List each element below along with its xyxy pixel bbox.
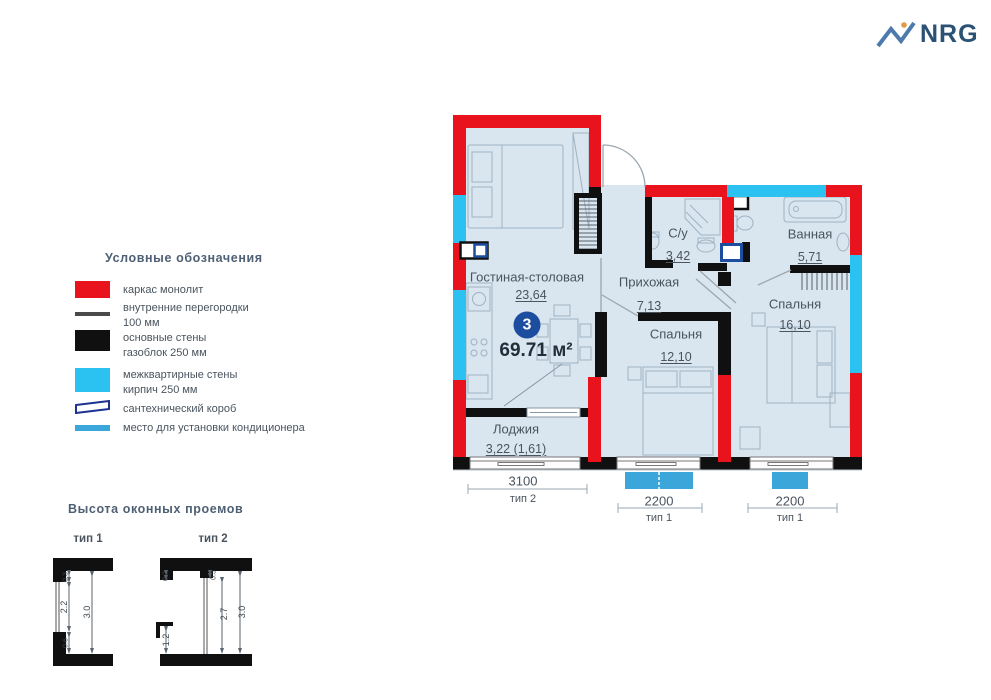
- room-bath-area: 5,71: [798, 250, 822, 264]
- type1-dim-total: 3.0: [82, 606, 92, 619]
- room-hall-area: 7,13: [637, 299, 661, 313]
- room-loggia-area: 3,22 (1,61): [486, 442, 546, 456]
- room-living-name: Гостиная-столовая: [470, 270, 584, 285]
- room-loggia-name: Лоджия: [493, 422, 539, 437]
- type2-dim-window: 2.7: [219, 608, 229, 621]
- legend-label-ac-place: место для установки кондиционера: [123, 421, 305, 436]
- legend-label-monolith: каркас монолит: [123, 283, 203, 298]
- room-wc-name: С/у: [668, 226, 688, 241]
- type2-dim-top-left: 0.2: [163, 571, 170, 581]
- window-type1-label: тип 1: [73, 533, 102, 545]
- window-heights-title: Высота оконных проемов: [68, 502, 243, 516]
- windows: [470, 457, 833, 469]
- legend-label-partitions: внутренние перегородки100 мм: [123, 301, 249, 331]
- dim-window1-type: тип 1: [646, 512, 672, 524]
- legend-chip-sanitary-box-icon: [75, 400, 110, 414]
- legend-chip-ac-place: [75, 425, 110, 431]
- ac-place-2: [772, 472, 808, 489]
- legend-label-main-walls: основные стеныгазоблок 250 мм: [123, 331, 207, 361]
- sanitary-box-plan: [722, 245, 742, 261]
- dim-window2-type: тип 1: [777, 512, 803, 524]
- type2-dim-top-mid: 0.3: [211, 570, 218, 580]
- room-wc-area: 3,42: [666, 249, 690, 263]
- room-bedroom16-area: 16,10: [779, 318, 810, 332]
- rooms-count-badge: 3: [514, 312, 541, 339]
- type1-dim-top: 0.3: [63, 572, 70, 582]
- type1-dim-window: 2.2: [59, 601, 69, 614]
- legend-label-sanitary-box: сантехнический короб: [123, 402, 236, 417]
- nrg-logo-text: NRG: [920, 20, 979, 49]
- window-type1-diagram: [45, 552, 145, 680]
- legend-chip-monolith: [75, 281, 110, 298]
- nrg-logo-icon: [874, 16, 916, 52]
- legend-chip-partitions: [75, 312, 110, 316]
- room-bedroom12-name: Спальня: [650, 327, 702, 342]
- room-living-area: 23,64: [515, 288, 546, 302]
- vent-shaft: [577, 196, 600, 252]
- type2-dim-total: 3.0: [237, 606, 247, 619]
- floorplan-drawing: [440, 95, 880, 535]
- nrg-logo: NRG: [874, 16, 979, 52]
- window-type2-label: тип 2: [198, 533, 227, 545]
- dim-window2-width: 2200: [776, 494, 805, 509]
- room-bedroom12-area: 12,10: [660, 350, 691, 364]
- legend-chip-interapartment: [75, 368, 110, 392]
- room-bath-name: Ванная: [788, 227, 833, 242]
- dim-window1-width: 2200: [645, 494, 674, 509]
- legend-label-interapartment: межквартирные стеныкирпич 250 мм: [123, 368, 237, 398]
- type1-dim-bottom: 0.6: [63, 638, 70, 648]
- total-area: 69.71 м²: [499, 340, 572, 362]
- type2-dim-low: 1.2: [161, 634, 171, 647]
- dim-loggia-width: 3100: [509, 474, 538, 489]
- legend-chip-main-walls: [75, 330, 110, 351]
- legend-title: Условные обозначения: [105, 251, 263, 265]
- wardrobe-hatch: [798, 273, 850, 290]
- room-bedroom16-name: Спальня: [769, 297, 821, 312]
- room-hall-name: Прихожая: [619, 275, 679, 290]
- dim-loggia-type: тип 2: [510, 493, 536, 505]
